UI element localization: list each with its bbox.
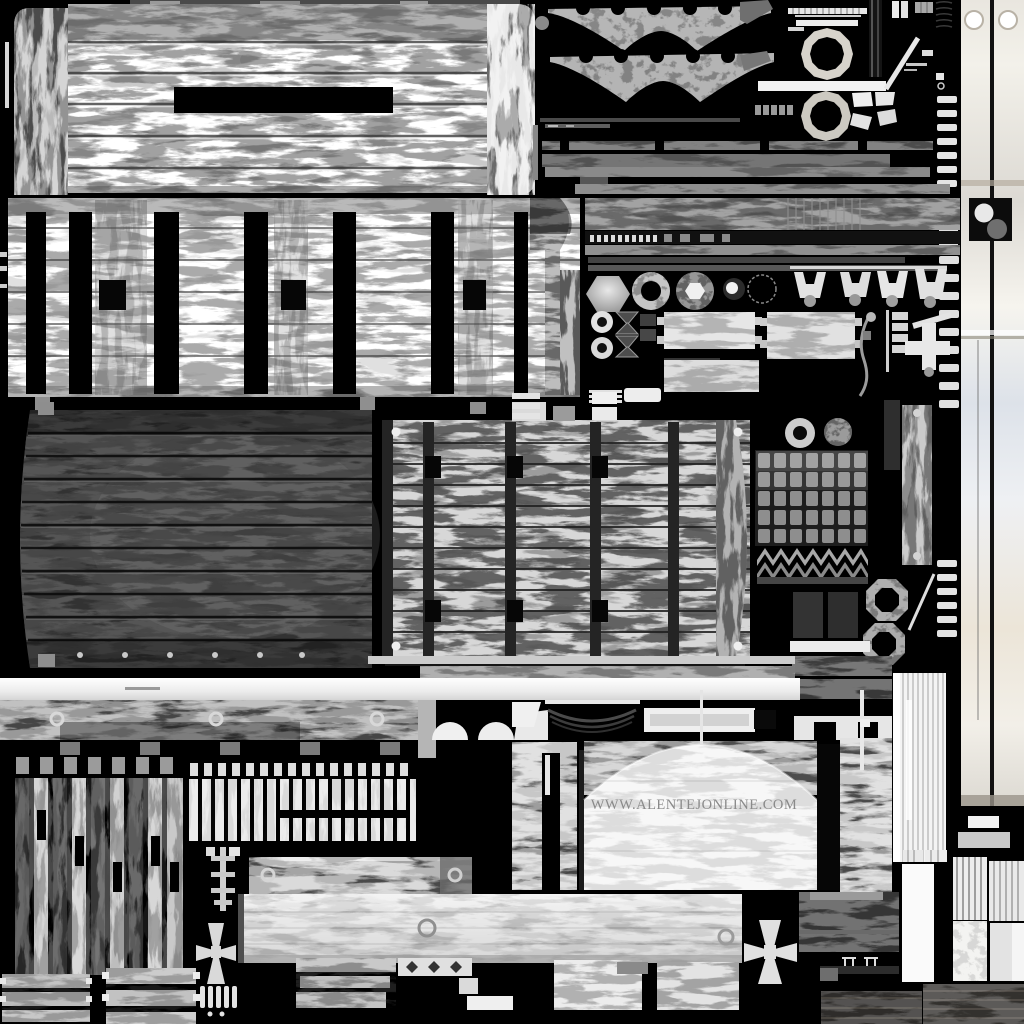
svg-text:WWW.ALENTEJONLINE.COM: WWW.ALENTEJONLINE.COM [591,797,797,813]
